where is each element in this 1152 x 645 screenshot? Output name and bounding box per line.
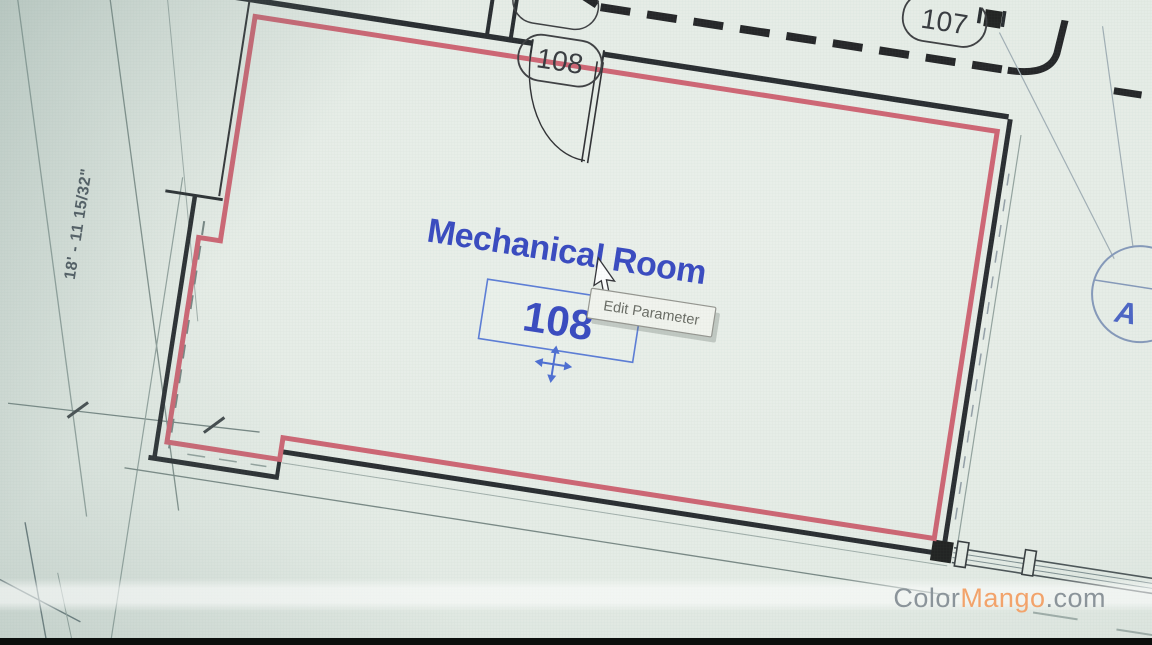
grid-bubble-label: A <box>1112 296 1139 332</box>
floor-plan-svg: 18' - 11 15/32" <box>0 0 1152 645</box>
letterbox-bar <box>0 638 1152 645</box>
watermark-color: Color <box>893 583 960 613</box>
cad-viewport: 18' - 11 15/32" <box>0 0 1152 645</box>
door-tag-107[interactable]: 107 <box>900 0 990 50</box>
dashed-wall-line <box>556 0 1152 115</box>
watermark: ColorMango.com <box>893 583 1106 614</box>
watermark-dotcom: .com <box>1045 583 1106 613</box>
dimension-text: 18' - 11 15/32" <box>62 167 96 281</box>
screen-photo: 18' - 11 15/32" <box>0 0 1152 645</box>
watermark-mango: Mango <box>960 583 1045 613</box>
door-tag-partial[interactable] <box>510 0 602 33</box>
door-tag-107-label: 107 <box>919 3 970 41</box>
room-name-label[interactable]: Mechanical Room <box>425 212 709 293</box>
door-tag-108-label: 108 <box>534 42 585 80</box>
